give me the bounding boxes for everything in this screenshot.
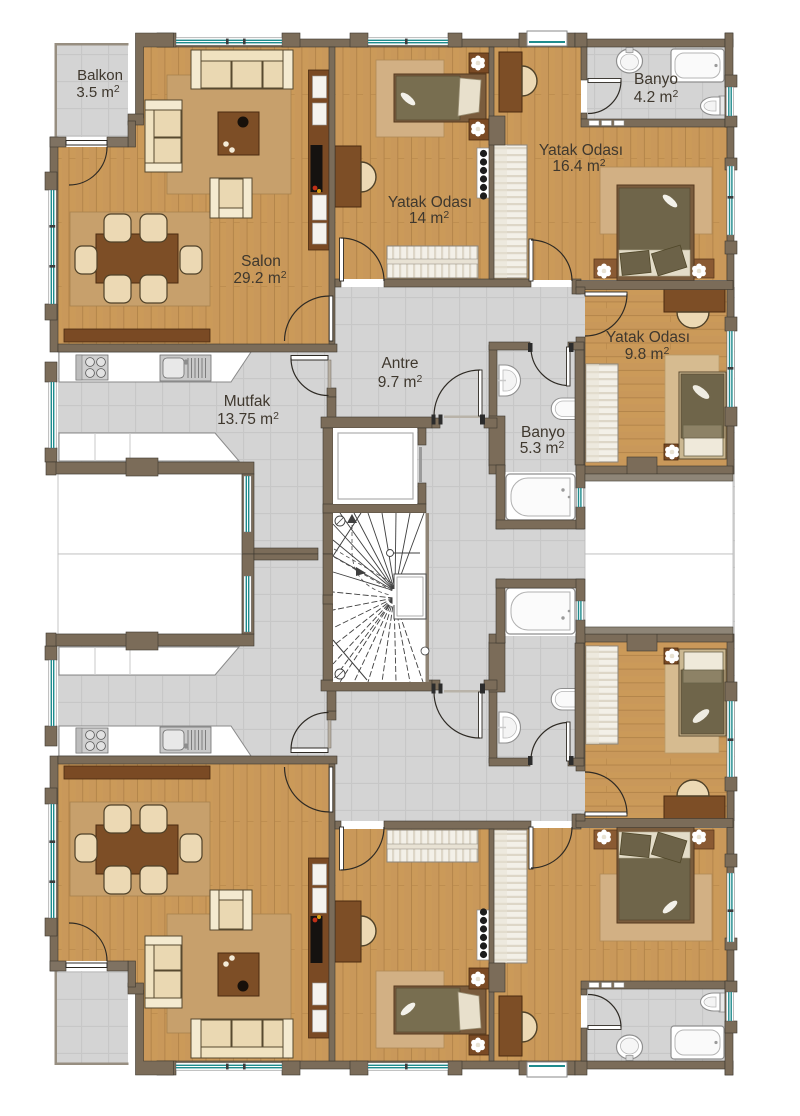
svg-text:29.2 m2: 29.2 m2 [233,269,286,287]
svg-text:14 m2: 14 m2 [409,209,449,227]
svg-text:Salon: Salon [241,253,281,270]
svg-text:9.7 m2: 9.7 m2 [378,373,423,391]
svg-text:4.2 m2: 4.2 m2 [634,88,679,106]
svg-text:9.8 m2: 9.8 m2 [625,345,670,363]
svg-text:13.75 m2: 13.75 m2 [217,410,279,428]
svg-text:Mutfak: Mutfak [224,393,271,410]
svg-text:Antre: Antre [381,355,418,372]
svg-text:Yatak Odası: Yatak Odası [606,329,690,346]
svg-text:Yatak Odası: Yatak Odası [388,194,472,211]
svg-text:Balkon: Balkon [77,67,123,84]
svg-text:3.5 m2: 3.5 m2 [76,83,120,101]
svg-text:16.4 m2: 16.4 m2 [552,157,605,175]
svg-text:5.3 m2: 5.3 m2 [520,439,565,457]
svg-text:Banyo: Banyo [634,71,678,88]
svg-text:Yatak Odası: Yatak Odası [539,142,623,159]
